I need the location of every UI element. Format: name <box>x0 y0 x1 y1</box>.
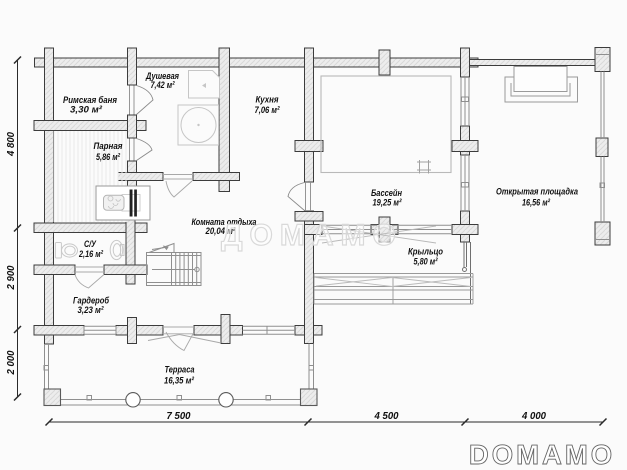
svg-text:Бассейн: Бассейн <box>371 188 402 198</box>
svg-text:С/У: С/У <box>84 239 97 249</box>
svg-text:2 000: 2 000 <box>6 350 17 376</box>
svg-text:2 900: 2 900 <box>6 265 17 291</box>
svg-text:2,16 м²: 2,16 м² <box>78 249 103 259</box>
svg-text:16,56 м²: 16,56 м² <box>522 198 551 208</box>
svg-text:5,80 м²: 5,80 м² <box>414 257 439 267</box>
svg-text:Кухня: Кухня <box>256 95 279 105</box>
svg-text:DOMAMO: DOMAMO <box>469 439 615 470</box>
svg-text:4 800: 4 800 <box>6 131 17 157</box>
svg-text:Крыльцо: Крыльцо <box>408 247 443 257</box>
svg-text:Терраса: Терраса <box>165 365 195 375</box>
svg-text:3,23 м²: 3,23 м² <box>78 305 105 315</box>
svg-text:Гардероб: Гардероб <box>73 296 109 306</box>
svg-text:16,35 м²: 16,35 м² <box>164 376 195 386</box>
svg-text:Открытая площадка: Открытая площадка <box>496 187 578 197</box>
svg-text:4 000: 4 000 <box>521 411 547 422</box>
svg-text:7 500: 7 500 <box>167 411 192 422</box>
svg-text:7,42 м²: 7,42 м² <box>151 80 176 90</box>
svg-text:4 500: 4 500 <box>374 411 400 422</box>
svg-text:19,25 м²: 19,25 м² <box>373 198 403 208</box>
svg-text:3,30 м²: 3,30 м² <box>70 105 103 115</box>
svg-text:7,06 м²: 7,06 м² <box>255 105 281 115</box>
svg-text:ДОМАМО: ДОМАМО <box>221 219 403 252</box>
svg-text:Римская баня: Римская баня <box>63 95 117 105</box>
svg-text:5,86 м²: 5,86 м² <box>96 152 121 162</box>
svg-text:Парная: Парная <box>94 141 123 151</box>
